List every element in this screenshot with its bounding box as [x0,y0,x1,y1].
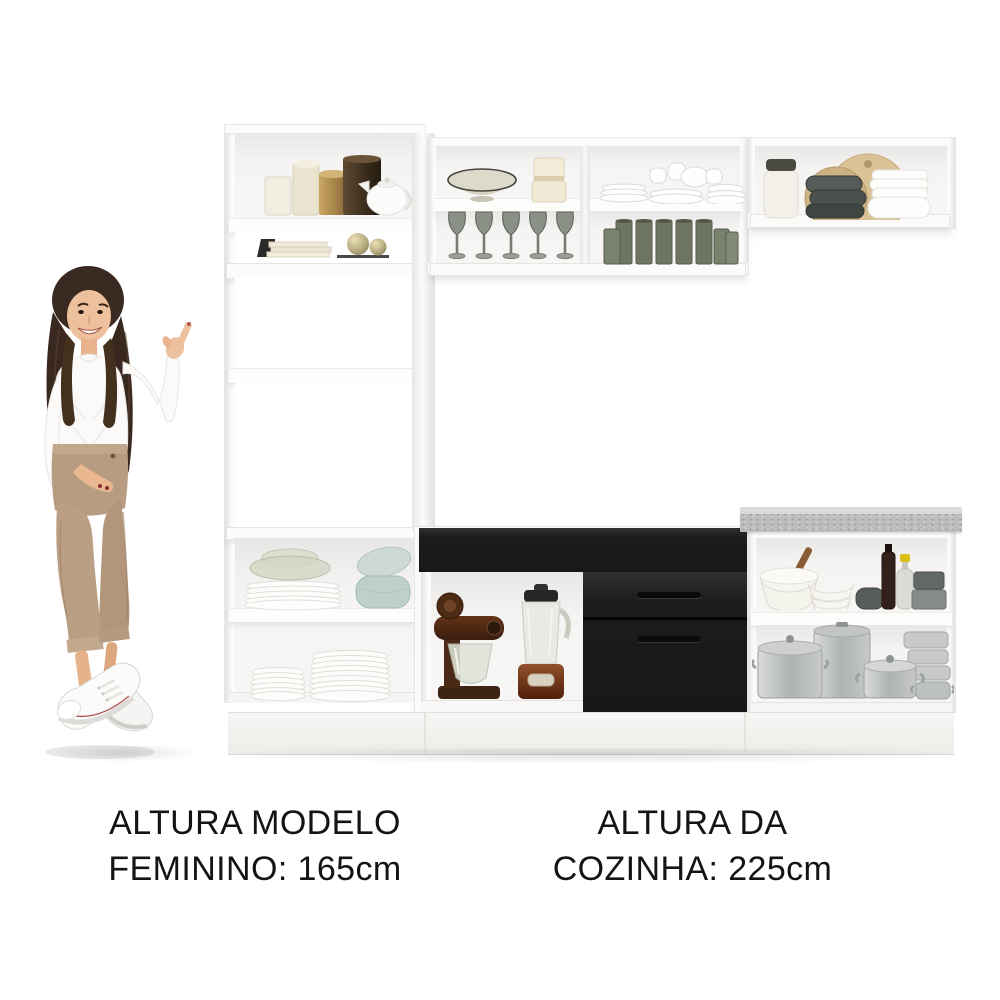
sneakers [55,663,153,731]
tall-cabinet-open-niche-1 [235,277,415,368]
countertop [740,507,962,532]
face [67,274,111,342]
drawer-handle-top [637,592,701,598]
cups-and-saucers [598,152,748,204]
floor-shadow-kitchen [230,748,954,764]
bowl-and-jars [442,150,578,204]
model-height-caption-line2: FEMININO: 165cm [70,846,440,892]
plate-stacks [238,630,418,702]
bowls-and-bottles [754,542,952,610]
model-photo [15,260,230,760]
stand-mixer [434,593,504,699]
drawer-stack-black [583,572,748,712]
pointing-hand [161,322,192,361]
tall-cabinet-open-niche-2 [235,382,415,527]
upper-right-left-panel [748,138,755,214]
books-and-ornaments [255,230,395,260]
jar-boards-and-bowls [756,146,952,220]
upper-middle-divider [580,146,590,263]
canister-set [243,153,415,217]
blender [518,584,568,699]
kitchen-height-caption: ALTURA DA COZINHA: 225cm [520,800,865,892]
product-image: ALTURA MODELO FEMININO: 165cm ALTURA DA … [0,0,1000,1000]
plates-and-blue-bowls [238,540,418,612]
top-drawer-black [419,528,748,572]
model-shadow [45,745,155,759]
drawer-handle-bottom [637,636,701,642]
kitchen-height-caption-line2: COZINHA: 225cm [520,846,865,892]
model-height-caption-line1: ALTURA MODELO [70,800,440,846]
pots-and-pans [752,622,954,702]
wine-glasses [443,210,579,264]
glass-tumblers [594,216,740,268]
drawer-gap [583,617,748,620]
model-height-caption: ALTURA MODELO FEMININO: 165cm [70,800,440,892]
stand-mixer-and-blender [428,582,580,702]
kitchen-height-caption-line1: ALTURA DA [520,800,865,846]
